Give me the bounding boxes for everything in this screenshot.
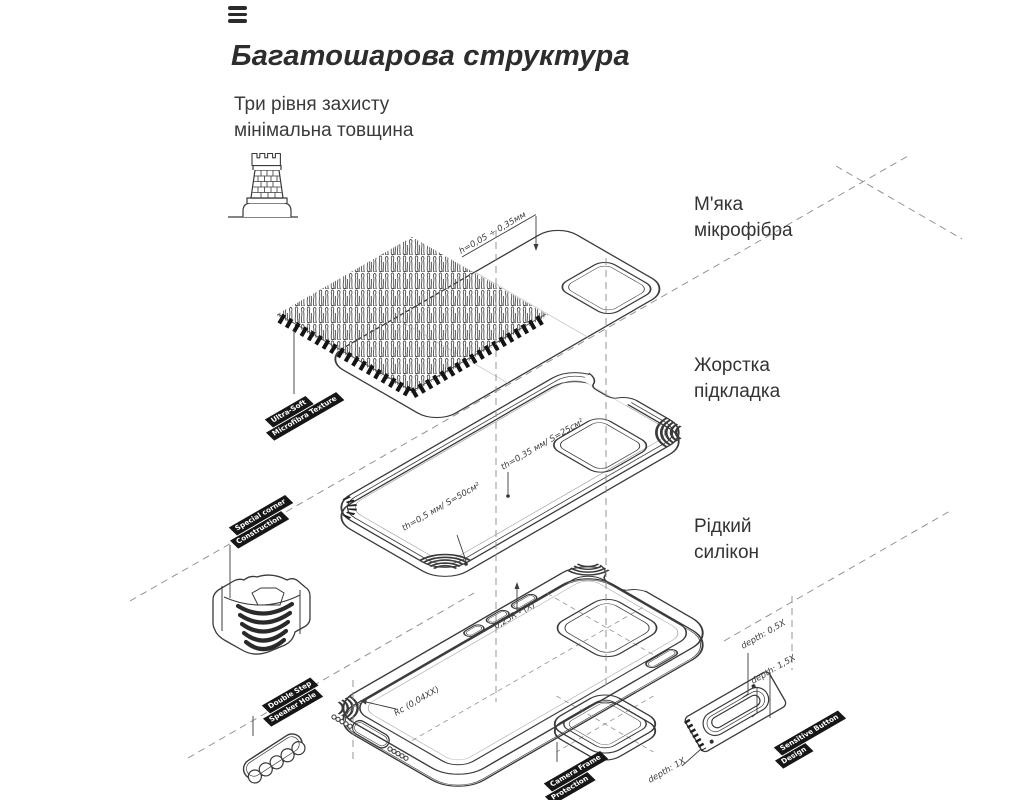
- speaker-holes: [332, 715, 408, 760]
- corner-bumper-piece: [213, 575, 310, 654]
- hard-lining-layer: [328, 364, 693, 584]
- lining-corner-ribs: [642, 418, 692, 447]
- silicone-case-layer: [328, 557, 719, 795]
- annotation-floor-radius: Rc (0,04XX): [393, 685, 442, 719]
- grip-teeth: [687, 720, 704, 749]
- corner-ribs: [238, 604, 292, 649]
- annotation-lining-small: th=0,35 мм/ S=25см²: [500, 417, 587, 473]
- exploded-diagram: h=0,05 ÷ 0,35мм th=0,35 мм/ S=25см² th=0…: [0, 0, 1024, 800]
- speaker-holes-piece: [240, 730, 308, 786]
- annotation-lining-large: th=0,5 мм/ S=50см²: [401, 481, 483, 534]
- annotation-depth-small: depth: 0,5X: [740, 618, 788, 652]
- lining-camera-hole: [547, 415, 653, 476]
- volume-button-cutouts: [462, 593, 540, 638]
- castle-tower-icon: [228, 154, 298, 218]
- side-button-piece: [683, 670, 787, 753]
- annotation-depth-mid: depth: 1X: [647, 756, 688, 786]
- infographic-page: Багатошарова структура Три рівня захисту…: [0, 0, 1024, 800]
- charging-port: [350, 718, 392, 751]
